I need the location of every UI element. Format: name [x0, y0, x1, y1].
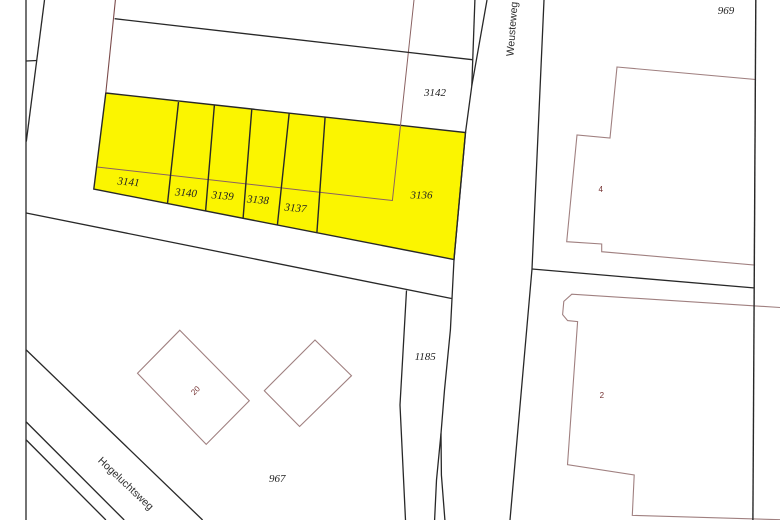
svg-text:967: 967 — [269, 473, 286, 485]
svg-text:3142: 3142 — [423, 87, 447, 99]
svg-text:3136: 3136 — [410, 189, 434, 201]
svg-text:2: 2 — [600, 391, 605, 400]
svg-text:969: 969 — [718, 5, 735, 17]
svg-text:3141: 3141 — [116, 175, 140, 189]
svg-text:3138: 3138 — [245, 193, 269, 207]
svg-text:3137: 3137 — [283, 201, 307, 215]
svg-text:4: 4 — [598, 185, 603, 194]
svg-text:3140: 3140 — [173, 186, 197, 200]
svg-text:1185: 1185 — [415, 351, 437, 363]
svg-text:3139: 3139 — [210, 189, 234, 203]
